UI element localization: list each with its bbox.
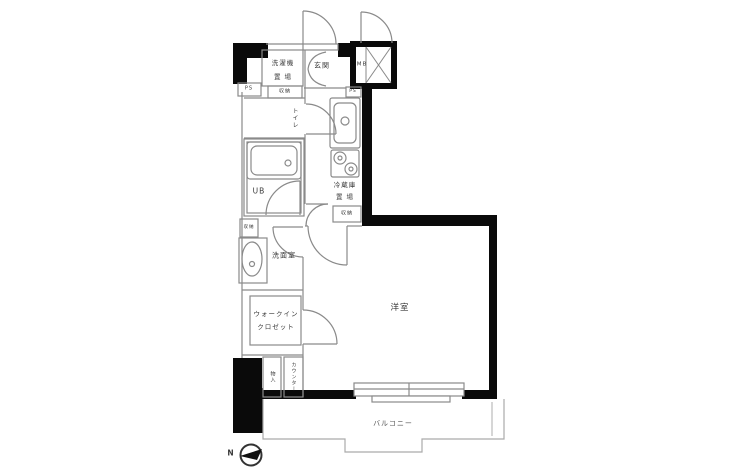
ps-kitchen-label: PS (349, 90, 357, 95)
sink-drain (341, 117, 349, 125)
sink-basin (334, 103, 356, 143)
refrigerator-label-line2: 置 場 (336, 194, 354, 201)
wall-right (489, 215, 497, 399)
ub-room-outer (244, 139, 304, 216)
window-outer-sash (372, 396, 450, 402)
bathtub-drain (285, 160, 291, 166)
washbasin-bowl (242, 242, 262, 276)
fan-arc-bottom (308, 69, 326, 86)
stove-burner-1-center (338, 156, 342, 160)
mb-door-arc (361, 12, 392, 43)
laundry-label-line1: 洗濯機 (272, 60, 295, 67)
balcony-label: バルコニー (373, 421, 413, 428)
storage-entrance-label: 収納 (279, 90, 291, 95)
ub-door (266, 181, 300, 215)
stove-burner-2 (345, 163, 357, 175)
entrance-door-arc (303, 11, 336, 44)
entrance-door (303, 11, 336, 44)
bathtub (247, 142, 301, 179)
room-door-arc (308, 226, 347, 265)
unit-bath-label: UB (253, 187, 266, 195)
wall-bottomleft-block (233, 388, 263, 433)
stove-burner-1 (334, 152, 346, 164)
counter-label: カウンター (291, 362, 296, 392)
window (354, 383, 464, 402)
entrance-label: 玄関 (314, 63, 330, 70)
wall-bottom-right (462, 390, 497, 399)
wic-label-line2: クロゼット (257, 324, 295, 331)
wic-door-arc (303, 310, 337, 344)
wall-entrance-right (338, 43, 352, 57)
stove-burner-2-center (349, 167, 353, 171)
compass-north-label: N (227, 449, 234, 457)
compass (240, 445, 262, 466)
storage-kitchen-label: 収納 (341, 212, 353, 217)
floorplan-drawing (0, 0, 730, 470)
wic-box (250, 296, 301, 345)
kitchen-sink (330, 98, 360, 148)
western-room-label: 洋室 (390, 304, 409, 313)
wic-door (303, 310, 337, 344)
room-door (308, 226, 347, 265)
washbasin-drain (250, 262, 255, 267)
laundry-label-line2: 置 場 (274, 74, 292, 81)
floorplan-page: 洗濯機 置 場 PS 収納 玄関 MB PS トイレ UB 冷蔵庫 置 場 収納… (0, 0, 730, 470)
toilet-label: トイレ (291, 108, 297, 129)
meter-box-label: MB (357, 62, 368, 68)
toilet-door (306, 104, 336, 134)
storage-washroom-label: 収納 (244, 226, 255, 231)
toilet-door-arc (306, 104, 336, 134)
ps-left-label: PS (245, 87, 253, 92)
storage-closet-label: 物入 (270, 371, 275, 383)
wall-bottom-left (262, 390, 356, 399)
wall-room-top (362, 215, 497, 226)
washbasin (239, 238, 267, 283)
wall-topleft-v (233, 43, 247, 84)
corridor-door (306, 204, 328, 226)
ub-room-inner (247, 142, 301, 213)
mb-door (361, 12, 392, 43)
ub-door-arc (266, 181, 300, 215)
entrance-door-sill (303, 44, 338, 50)
refrigerator-label-line1: 冷蔵庫 (334, 182, 357, 189)
bathtub-outer (247, 142, 301, 179)
washroom-label: 洗面室 (272, 253, 296, 260)
stove (331, 150, 359, 177)
corridor-door-arc (306, 204, 328, 226)
compass-needle (240, 449, 262, 460)
wic-label-line1: ウォークイン (254, 311, 299, 318)
wall-kitchen-divider (362, 88, 372, 219)
